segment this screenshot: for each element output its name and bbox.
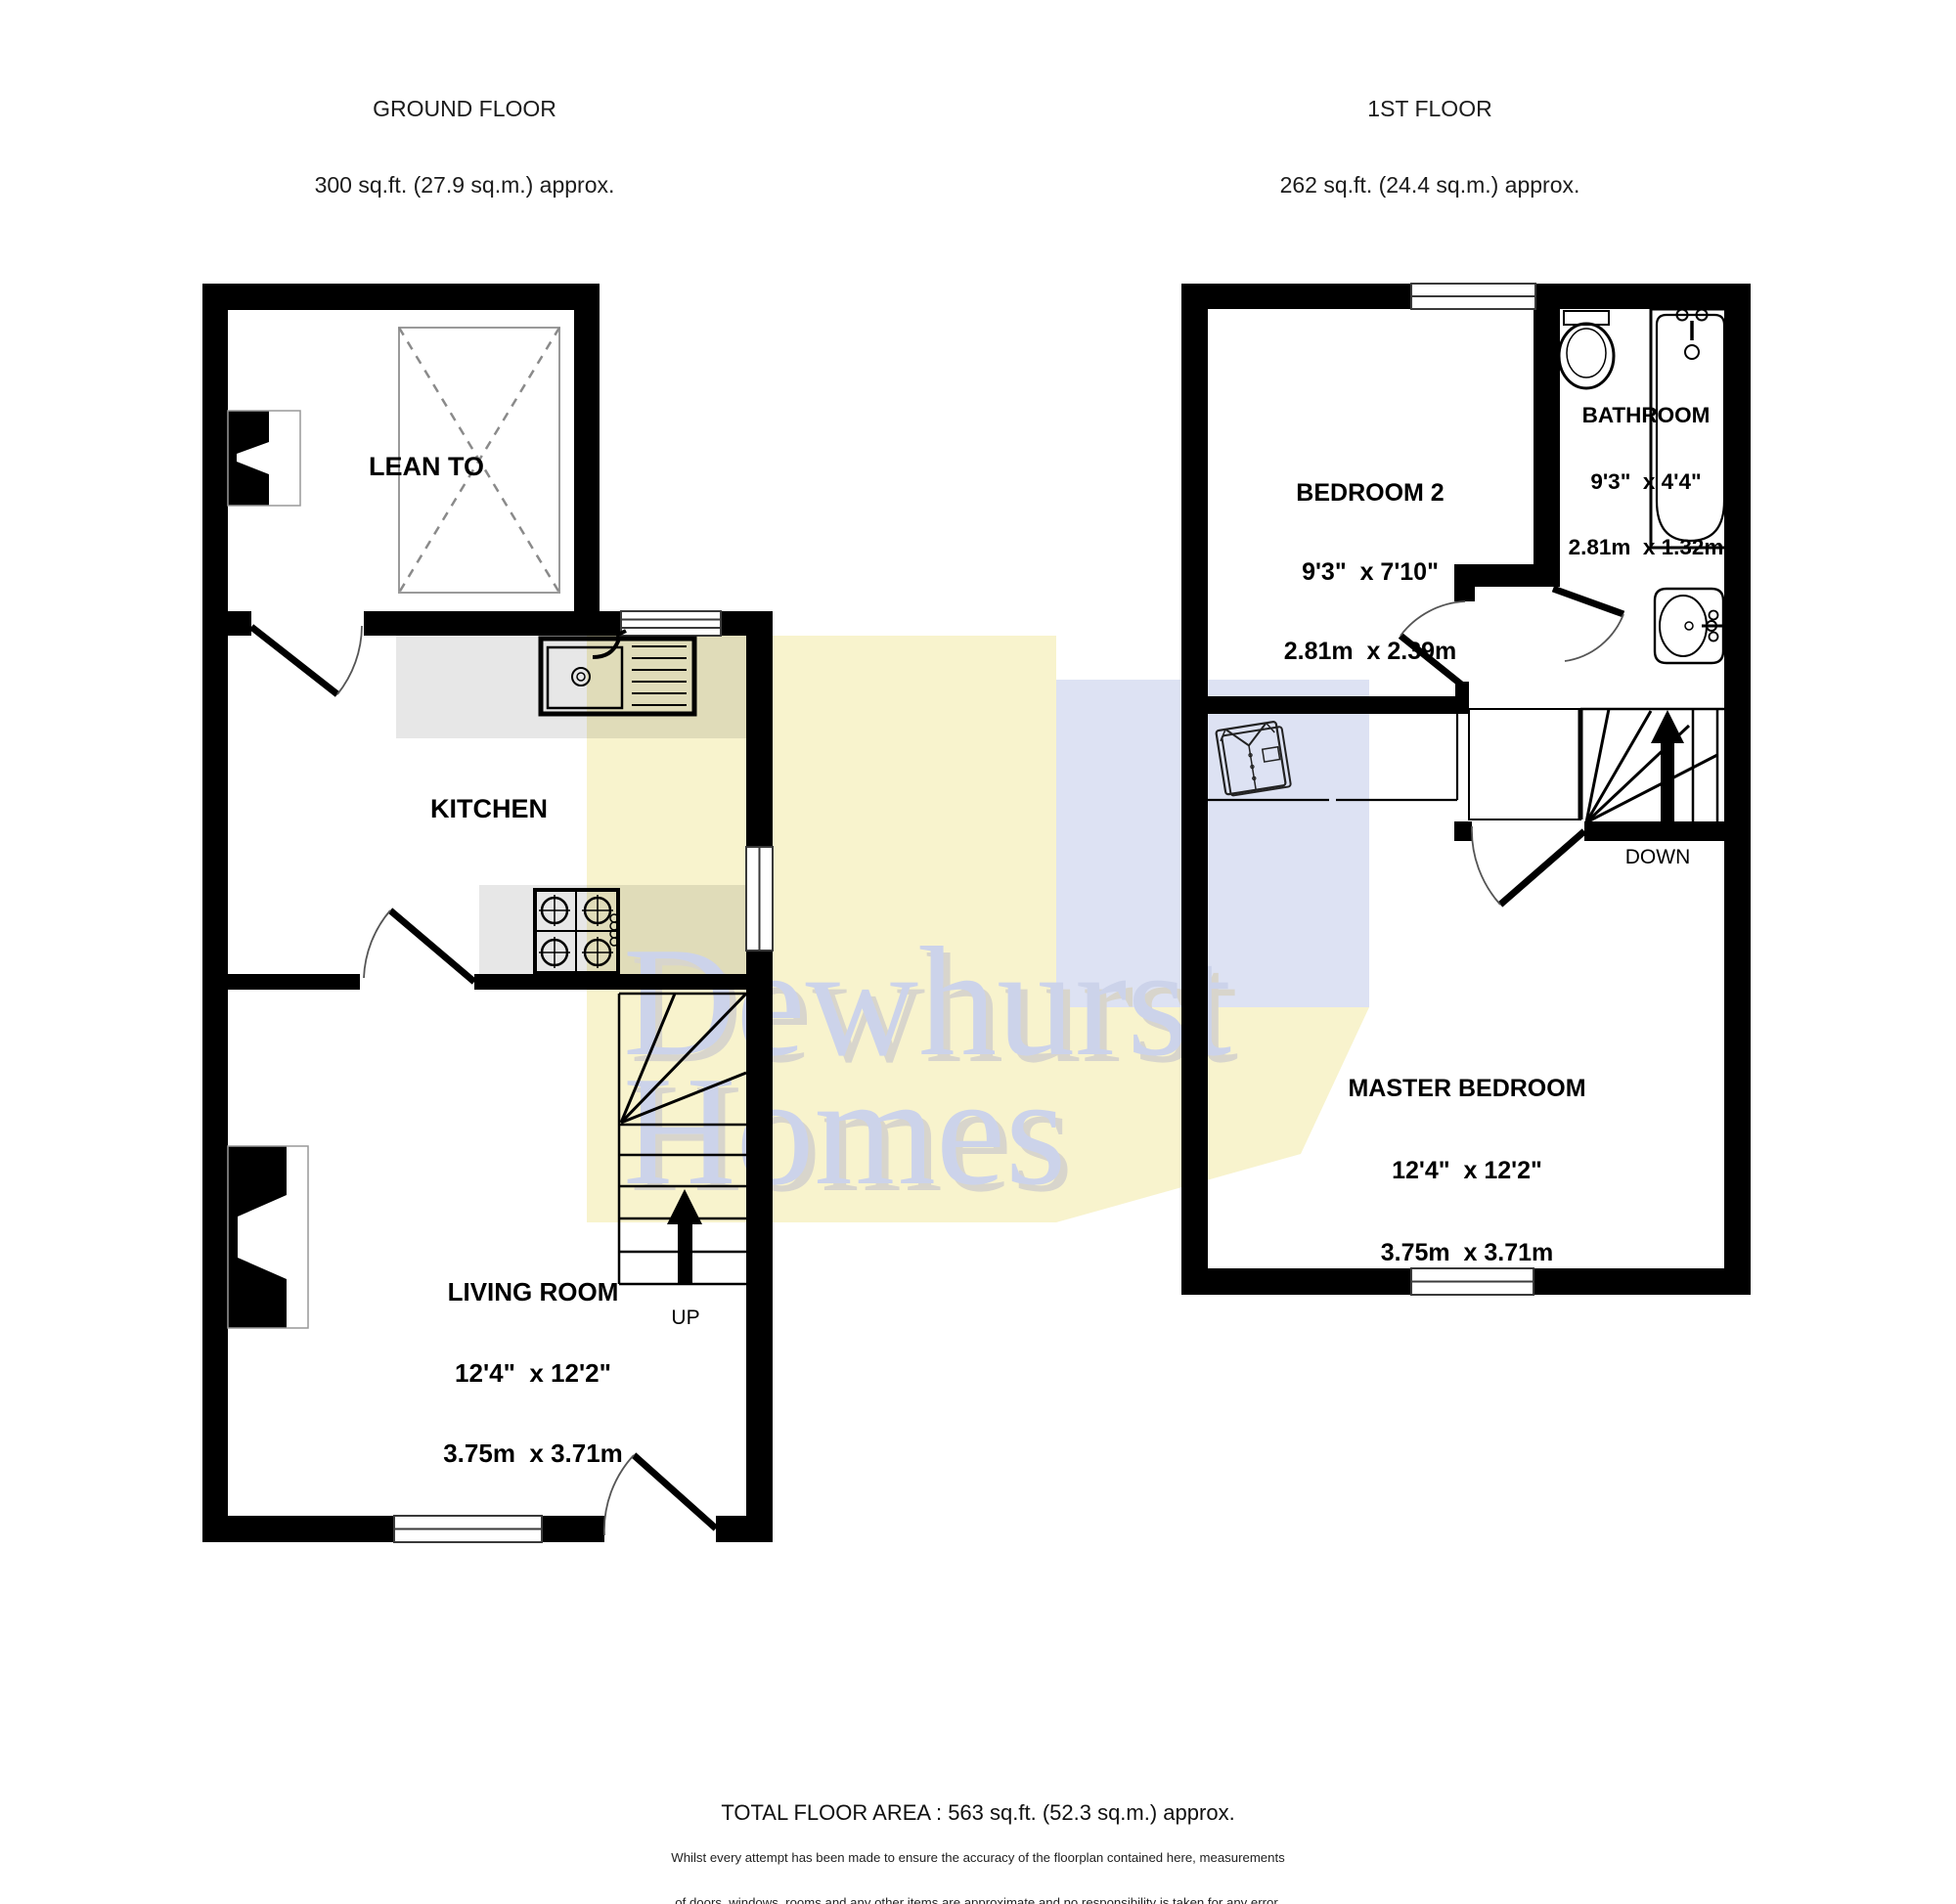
lean-to-label: LEAN TO xyxy=(369,452,484,482)
down-arrow-icon xyxy=(1651,710,1684,821)
master-bedroom-label: MASTER BEDROOM 12'4" x 12'2" 3.75m x 3.7… xyxy=(1348,1020,1585,1321)
stairs-up-label: UP xyxy=(671,1306,699,1330)
bathroom-metric: 2.81m x 1.32m xyxy=(1569,537,1724,559)
master-bedroom-name: MASTER BEDROOM xyxy=(1348,1075,1585,1102)
kitchen-top-window-icon xyxy=(621,611,721,636)
living-room-imperial: 12'4" x 12'2" xyxy=(443,1360,623,1388)
lean-to-door-icon xyxy=(251,626,362,694)
living-room-chimney-breast-icon xyxy=(228,1146,287,1328)
ground-floor-area: 300 sq.ft. (27.9 sq.m.) approx. xyxy=(315,172,615,198)
bedroom2-label: BEDROOM 2 9'3" x 7'10" 2.81m x 2.39m xyxy=(1284,427,1457,718)
disclaimer-line: Whilst every attempt has been made to en… xyxy=(668,1850,1289,1865)
bedroom2-metric: 2.81m x 2.39m xyxy=(1284,639,1457,665)
kitchen-door-icon xyxy=(364,910,474,982)
chimney-breast-icons xyxy=(228,411,308,1328)
bedroom2-window-icon xyxy=(1411,284,1535,309)
bathroom-label: BATHROOM 9'3" x 4'4" 2.81m x 1.32m xyxy=(1569,361,1724,603)
first-floor-area: 262 sq.ft. (24.4 sq.m.) approx. xyxy=(1280,172,1580,198)
bathroom-imperial: 9'3" x 4'4" xyxy=(1569,471,1724,494)
ground-floor-title: GROUND FLOOR xyxy=(315,96,615,121)
ground-floor-header: GROUND FLOOR 300 sq.ft. (27.9 sq.m.) app… xyxy=(315,45,615,248)
bedroom2-imperial: 9'3" x 7'10" xyxy=(1284,559,1457,586)
master-bedroom-metric: 3.75m x 3.71m xyxy=(1348,1239,1585,1266)
living-room-label: LIVING ROOM 12'4" x 12'2" 3.75m x 3.71m xyxy=(443,1225,623,1522)
floorplan-drawing: Dewhurst Dewhurst Homes Homes xyxy=(0,0,1956,1904)
living-room-name: LIVING ROOM xyxy=(443,1279,623,1306)
master-bedroom-imperial: 12'4" x 12'2" xyxy=(1348,1157,1585,1184)
disclaimer: Whilst every attempt has been made to en… xyxy=(668,1820,1289,1904)
floorplan-page: Dewhurst Dewhurst Homes Homes xyxy=(0,0,1956,1904)
disclaimer-line: of doors, windows, rooms and any other i… xyxy=(668,1895,1289,1904)
first-floor-header: 1ST FLOOR 262 sq.ft. (24.4 sq.m.) approx… xyxy=(1280,45,1580,248)
bathroom-name: BATHROOM xyxy=(1569,405,1724,427)
master-bedroom-door-icon xyxy=(1472,826,1584,905)
stairs-down xyxy=(1469,709,1724,822)
watermark-line2: Homes xyxy=(623,1043,1066,1218)
kitchen-label: KITCHEN xyxy=(430,794,548,824)
lean-to-chimney-breast-icon xyxy=(228,411,269,506)
stairs-down-label: DOWN xyxy=(1625,846,1691,869)
bedroom2-name: BEDROOM 2 xyxy=(1284,480,1457,507)
first-floor-title: 1ST FLOOR xyxy=(1280,96,1580,121)
living-room-metric: 3.75m x 3.71m xyxy=(443,1440,623,1468)
kitchen-side-window-icon xyxy=(746,847,773,951)
